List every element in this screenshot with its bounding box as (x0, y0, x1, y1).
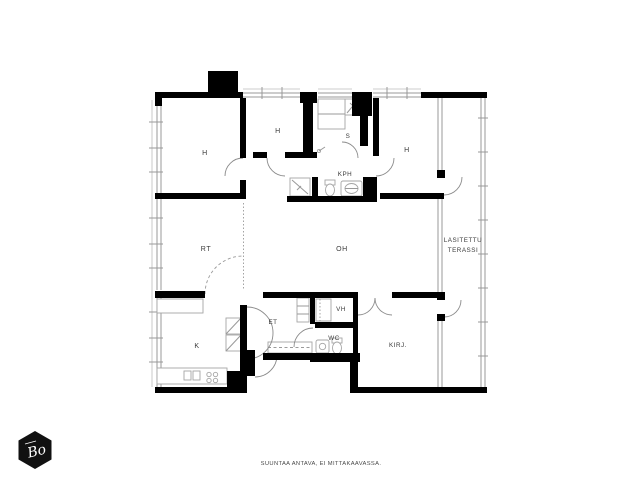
room-label-bathroom: KPH (338, 171, 352, 178)
room-label-dining: RT (201, 246, 212, 253)
kitchen-counter-top (157, 299, 203, 313)
floorplan-page: H H S KPH H RT OH K ET VH WC KIRJ. LASIT… (0, 0, 640, 480)
room-label-wc: WC (328, 335, 340, 342)
room-label-living: OH (336, 246, 348, 253)
room-label-library: KIRJ. (389, 342, 407, 349)
room-label-entry: ET (268, 319, 277, 326)
faucet-icon (317, 147, 325, 153)
door-bedroom1 (225, 158, 243, 176)
sink-icon (341, 181, 362, 196)
fridge-icon (226, 318, 241, 351)
door-sauna (342, 142, 358, 158)
door-library-left (358, 298, 375, 315)
door-bedroom3 (376, 158, 394, 176)
terrace-label-line2: TERASSI (448, 247, 478, 254)
room-label-bedroom1: H (202, 150, 208, 157)
wc-sink-icon (316, 340, 329, 353)
door-terrace-south (444, 300, 461, 317)
footer-disclaimer: SUUNTAA ANTAVA, EI MITTAKAAVASSA. (261, 461, 382, 467)
terrace-label-line1: LASITETTU (444, 237, 482, 244)
room-label-bedroom3: H (404, 147, 410, 154)
chimney-block (208, 71, 238, 92)
room-label-closet: VH (336, 306, 346, 313)
door-terrace-north (444, 177, 462, 195)
folding-partition-arc (205, 256, 243, 294)
wardrobe-icon (268, 342, 312, 353)
floorplan-drawing: H H S KPH H RT OH K ET VH WC KIRJ. LASIT… (0, 0, 640, 480)
door-library-right (375, 298, 392, 315)
door-bedroom2 (267, 158, 285, 176)
flue-block (352, 92, 372, 116)
brand-logo: Bo (19, 431, 52, 469)
room-label-kitchen: K (194, 343, 199, 350)
room-label-bedroom2: H (275, 128, 281, 135)
toilet-icon (325, 180, 335, 196)
room-label-sauna: S (346, 133, 351, 140)
